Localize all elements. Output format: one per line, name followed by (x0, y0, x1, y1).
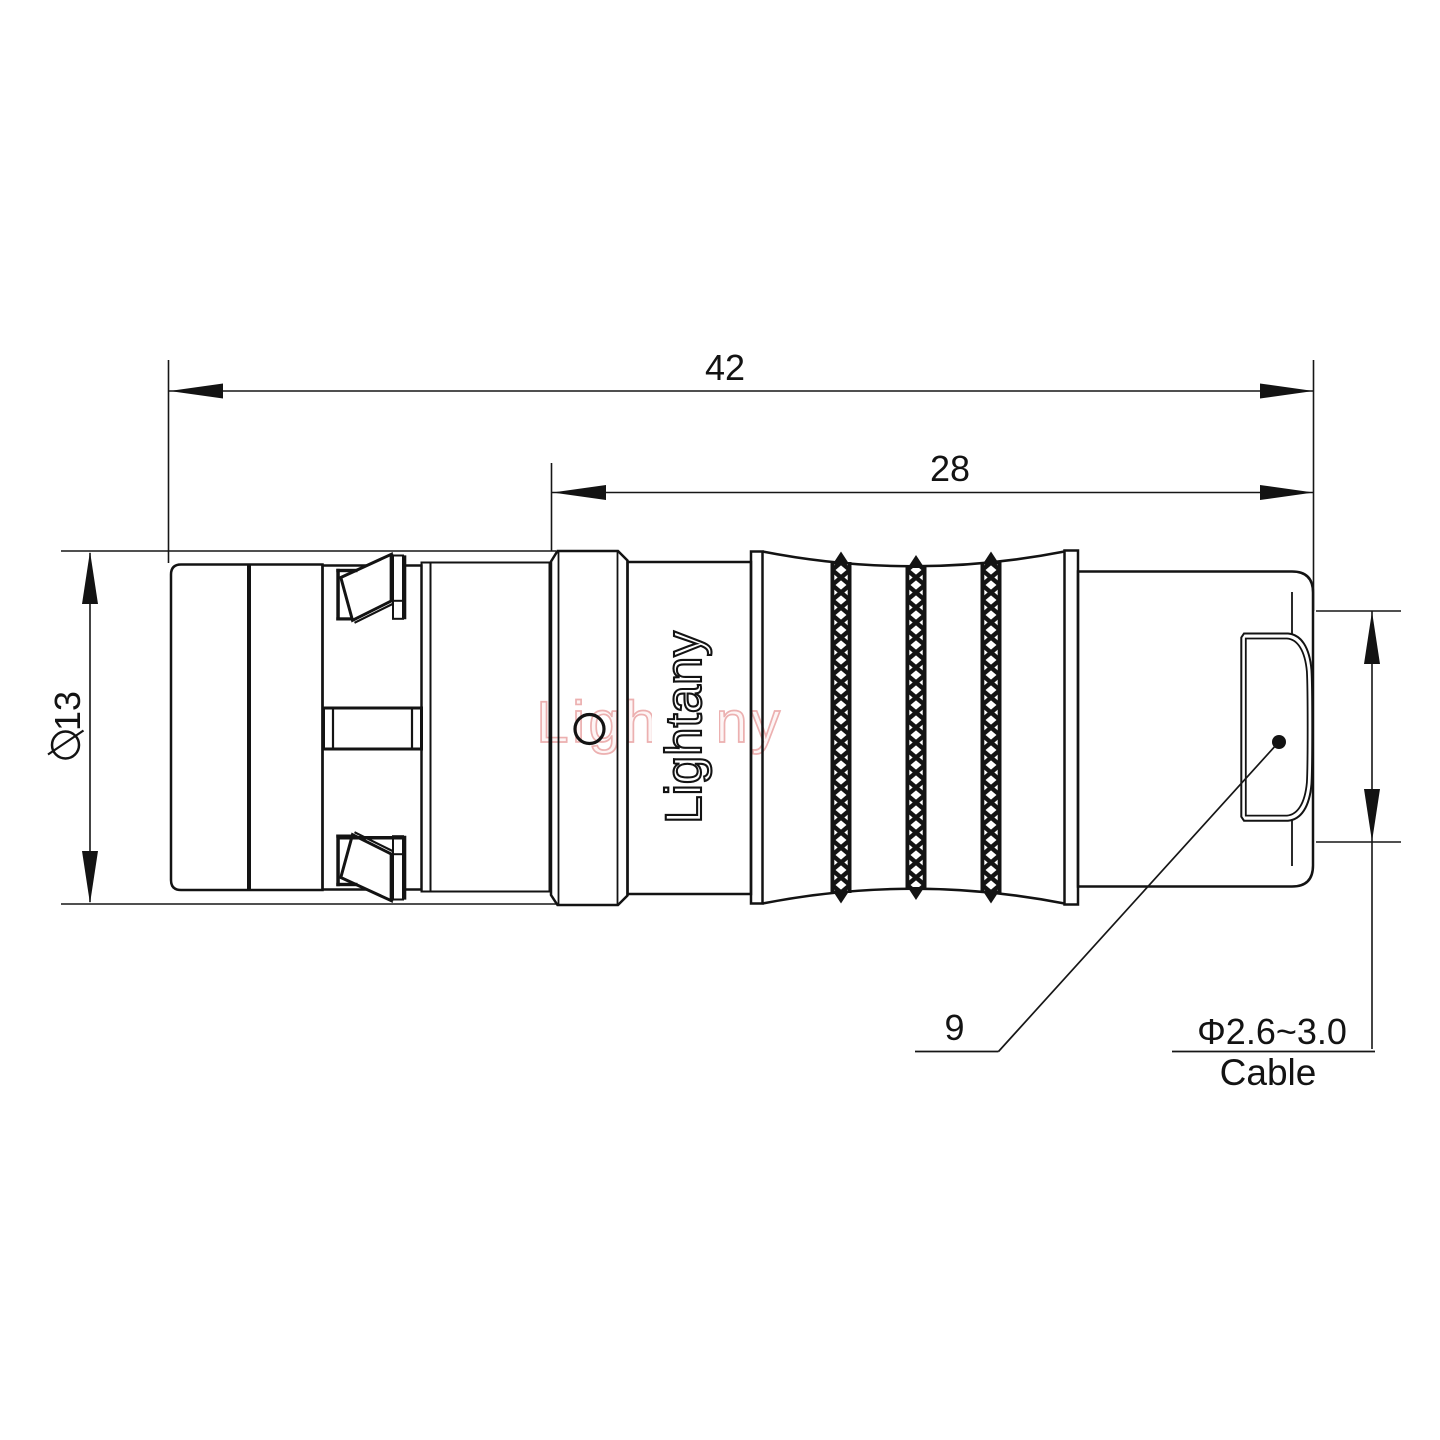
svg-text:Cable: Cable (1220, 1052, 1317, 1093)
svg-text:Φ2.6~3.0: Φ2.6~3.0 (1197, 1011, 1347, 1052)
svg-text:42: 42 (705, 347, 745, 388)
svg-text:28: 28 (930, 448, 970, 489)
svg-text:Lightany: Lightany (655, 631, 712, 824)
svg-text:13: 13 (47, 691, 88, 731)
svg-text:9: 9 (944, 1007, 964, 1048)
